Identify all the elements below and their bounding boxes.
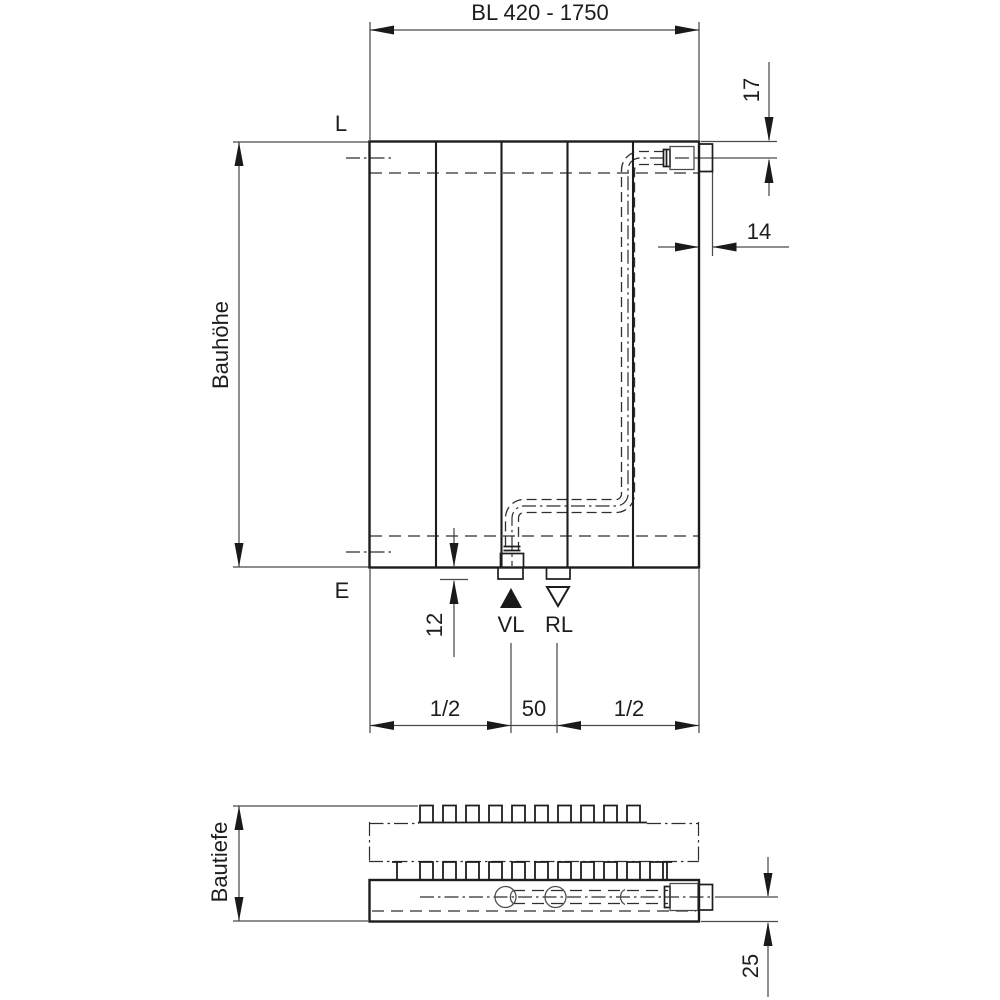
return-label: RL [545,612,573,637]
height-label: Bauhöhe [208,301,233,389]
dim-17-label: 17 [739,78,764,102]
radiator-technical-drawing: BL 420 - 1750 L E Bauhöhe 17 14 12 VL RL… [0,0,1000,1000]
supply-label: VL [498,612,525,637]
length-dimension-label: BL 420 - 1750 [471,0,608,25]
internal-pipe [506,152,665,567]
dim-14-label: 14 [747,219,771,244]
bottom-level-label: E [335,578,350,603]
dim-25-label: 25 [738,954,763,978]
drawing-canvas: BL 420 - 1750 L E Bauhöhe 17 14 12 VL RL… [0,0,1000,1000]
front-view-centerlines [346,158,698,552]
depth-label: Bautiefe [207,822,232,903]
radiator-panel-outline [370,142,700,568]
half-left-label: 1/2 [430,696,461,721]
convector-fins [392,806,672,881]
convector-cover-outline [369,822,714,897]
top-level-label: L [335,111,347,136]
half-right-label: 1/2 [614,696,645,721]
bottom-return-stub [547,568,571,580]
bottom-view-dimension-lines [233,806,778,997]
supply-direction-icon [500,588,522,608]
front-view: BL 420 - 1750 L E Bauhöhe 17 14 12 VL RL… [208,0,789,733]
bottom-view: Bautiefe 25 [207,806,778,998]
dim-12-label: 12 [422,613,447,637]
panel-section [370,880,700,922]
dim-50-label: 50 [522,696,546,721]
return-direction-icon [547,587,569,606]
